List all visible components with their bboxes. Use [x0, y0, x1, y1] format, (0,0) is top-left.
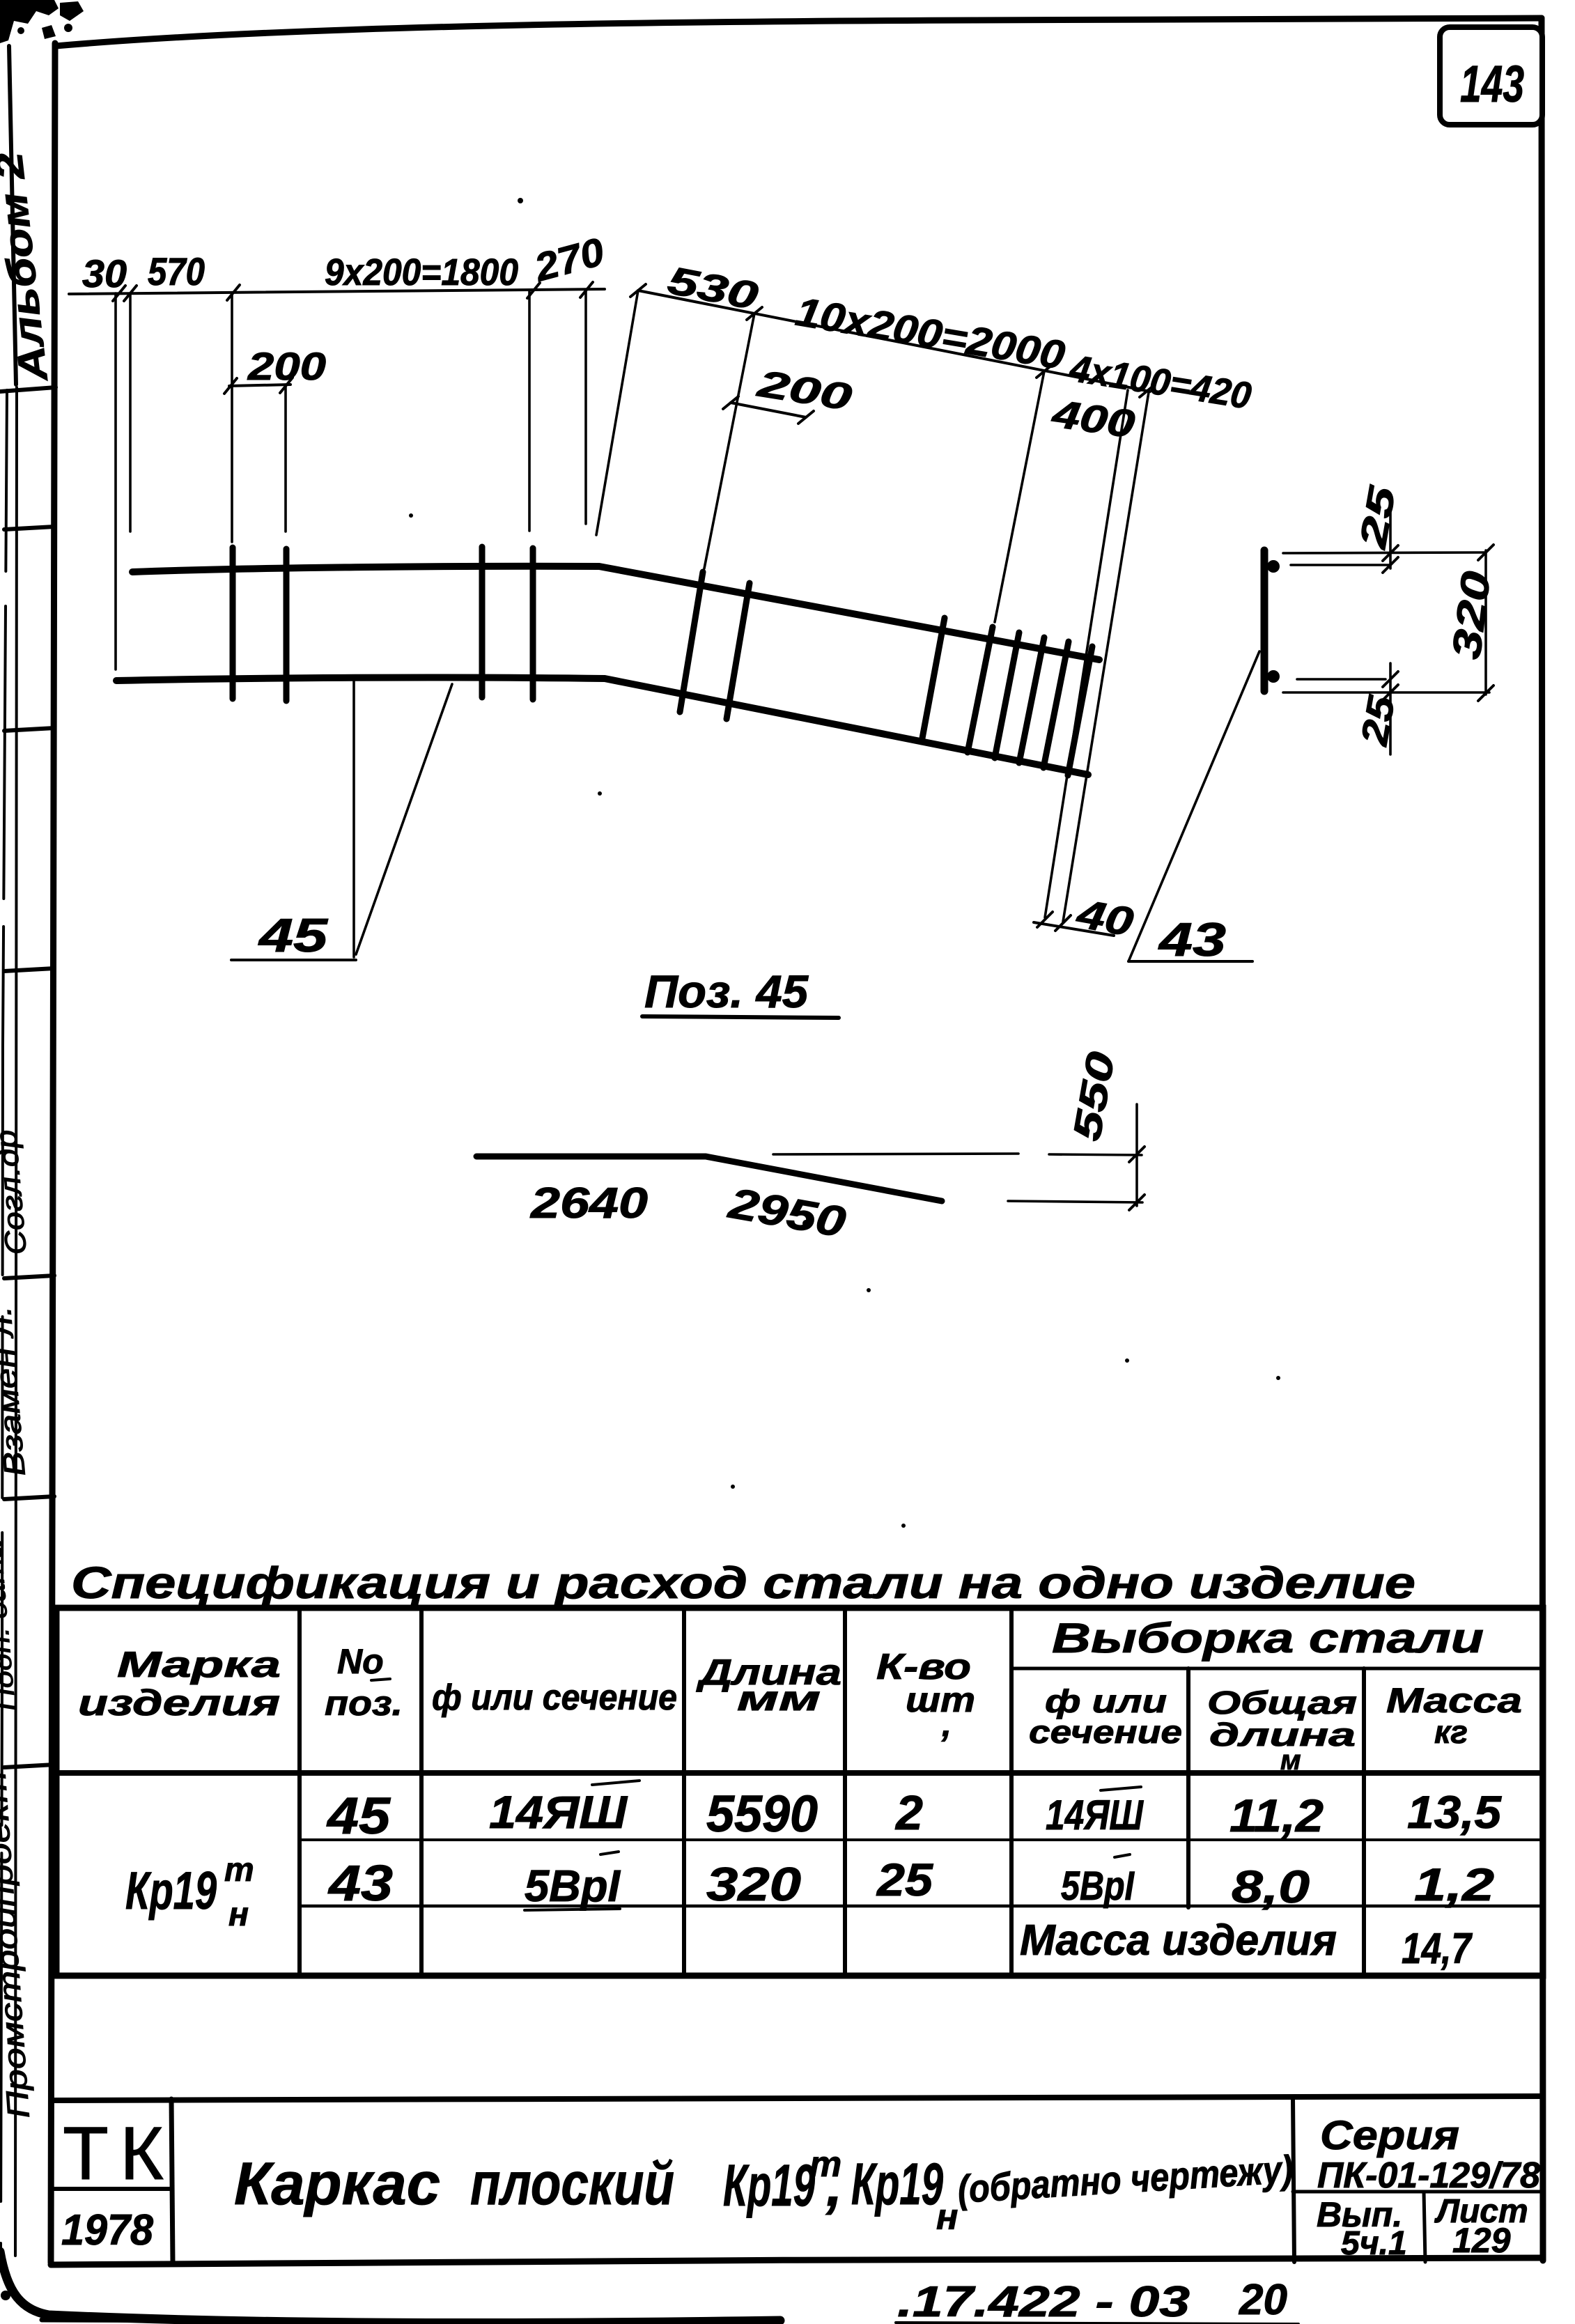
svg-text:14,7: 14,7: [1402, 1925, 1473, 1973]
svg-text:270: 270: [529, 229, 609, 290]
svg-text:43: 43: [327, 1856, 393, 1912]
svg-text:Кр19: Кр19: [851, 2151, 943, 2217]
svg-text:200: 200: [247, 344, 326, 388]
svg-text:т: т: [224, 1852, 254, 1889]
svg-text:5ВрI: 5ВрI: [525, 1861, 621, 1911]
svg-text:м: м: [1280, 1745, 1301, 1776]
svg-text:40: 40: [1073, 891, 1137, 945]
svg-text:Каркас: Каркас: [234, 2151, 440, 2217]
svg-text:Кр19: Кр19: [125, 1861, 217, 1921]
svg-text:ПК-01-129/78: ПК-01-129/78: [1317, 2155, 1540, 2196]
svg-text:Марка: Марка: [117, 1645, 281, 1685]
svg-text:н: н: [936, 2197, 958, 2238]
svg-text:45: 45: [326, 1787, 391, 1845]
svg-text:10x200=2000: 10x200=2000: [793, 289, 1068, 378]
svg-text:н: н: [228, 1896, 249, 1933]
svg-text:Выборка стали: Выборка стали: [1052, 1615, 1484, 1661]
svg-text:30: 30: [82, 251, 127, 295]
svg-text:Общая: Общая: [1207, 1684, 1357, 1721]
svg-text:129: 129: [1452, 2221, 1511, 2260]
svg-text:20: 20: [1239, 2276, 1287, 2324]
svg-text:Серия: Серия: [1320, 2113, 1459, 2158]
svg-text:изделия: изделия: [78, 1683, 280, 1723]
svg-text:25: 25: [1351, 483, 1404, 552]
svg-text:Подп. дата: Подп. дата: [0, 1540, 21, 1712]
svg-text:14ЯШ: 14ЯШ: [1046, 1792, 1144, 1838]
svg-text:Промстройпроект: Промстройпроект: [0, 1770, 36, 2120]
svg-text:530: 530: [665, 258, 762, 318]
svg-text:570: 570: [148, 249, 205, 293]
svg-text:поз.: поз.: [325, 1684, 403, 1723]
svg-text:ТК: ТК: [63, 2111, 175, 2195]
svg-text:2640: 2640: [530, 1179, 648, 1227]
svg-text:(обратно чертежу): (обратно чертежу): [956, 2147, 1294, 2211]
svg-text:320: 320: [1443, 569, 1499, 662]
svg-text:5ВрI: 5ВрI: [1061, 1864, 1135, 1909]
svg-text:11,2: 11,2: [1229, 1790, 1324, 1841]
svg-text:.17.422 - 03: .17.422 - 03: [897, 2278, 1190, 2324]
svg-text:Масса изделия: Масса изделия: [1020, 1916, 1337, 1965]
svg-text:1,2: 1,2: [1414, 1859, 1494, 1910]
svg-text:25: 25: [1353, 692, 1404, 750]
svg-text:Спецификация и расход стали на: Спецификация и расход стали на одно изде…: [71, 1558, 1415, 1608]
svg-text:,: ,: [825, 2153, 842, 2218]
svg-text:2950: 2950: [724, 1179, 849, 1247]
svg-text:2: 2: [894, 1785, 923, 1840]
svg-text:мм: мм: [737, 1679, 821, 1718]
svg-text:13,5: 13,5: [1407, 1786, 1502, 1838]
svg-text:сечение: сечение: [1029, 1714, 1182, 1750]
svg-text:Согл.др: Согл.др: [0, 1129, 33, 1256]
svg-text:14ЯШ: 14ЯШ: [489, 1786, 628, 1838]
svg-text:25: 25: [876, 1854, 934, 1905]
svg-text:плоский: плоский: [470, 2151, 674, 2217]
svg-text:Кр19: Кр19: [723, 2153, 815, 2218]
svg-text:45: 45: [257, 909, 328, 962]
svg-text:No: No: [337, 1642, 384, 1681]
svg-text:Поз. 45: Поз. 45: [644, 966, 809, 1017]
svg-text:9x200=1800: 9x200=1800: [325, 251, 518, 293]
svg-text:8,0: 8,0: [1232, 1861, 1310, 1912]
svg-text:,: ,: [941, 1705, 952, 1744]
svg-text:Альбом 2: Альбом 2: [0, 150, 56, 385]
svg-text:Взамен л.: Взамен л.: [0, 1305, 31, 1478]
svg-text:400: 400: [1049, 391, 1138, 446]
svg-text:шт: шт: [906, 1680, 975, 1719]
svg-text:43: 43: [1157, 913, 1226, 966]
svg-text:кг: кг: [1434, 1714, 1468, 1750]
svg-text:320: 320: [706, 1858, 801, 1911]
svg-text:1978: 1978: [61, 2206, 153, 2254]
svg-text:5590: 5590: [706, 1785, 818, 1843]
svg-text:550: 550: [1064, 1048, 1123, 1144]
svg-text:ф или сечение: ф или сечение: [432, 1678, 677, 1718]
svg-text:143: 143: [1460, 55, 1524, 113]
